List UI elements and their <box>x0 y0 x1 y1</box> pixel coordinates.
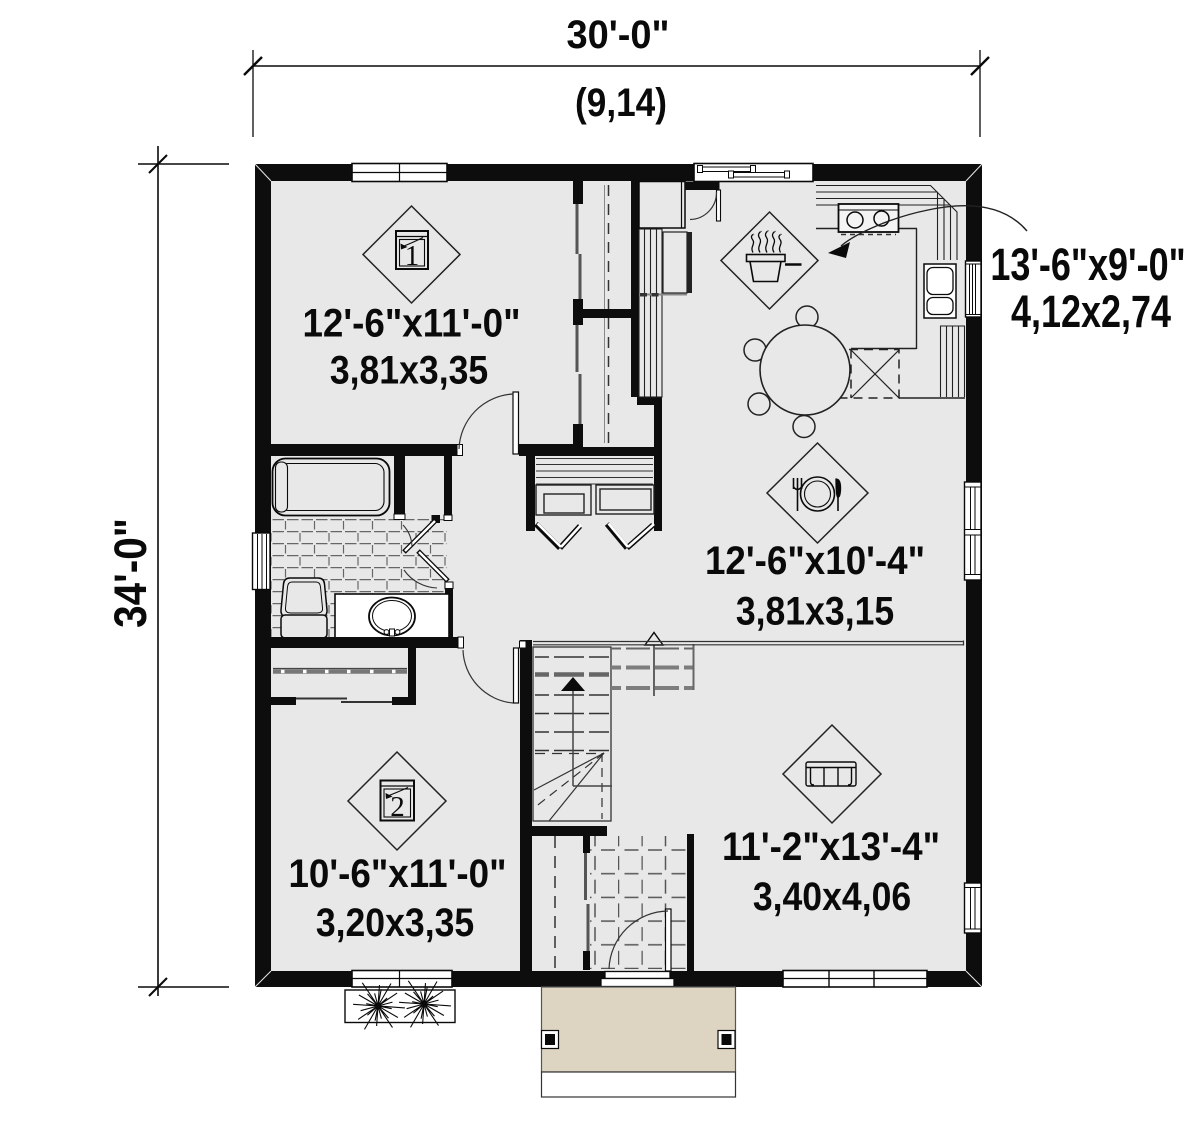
svg-text:34'-0": 34'-0" <box>106 518 156 628</box>
svg-text:2: 2 <box>390 791 405 823</box>
svg-text:(9,14): (9,14) <box>575 80 667 125</box>
svg-text:3,81x3,15: 3,81x3,15 <box>736 590 894 634</box>
svg-text:4,12x2,74: 4,12x2,74 <box>1011 286 1171 337</box>
svg-text:10'-6"x11'-0": 10'-6"x11'-0" <box>288 852 506 897</box>
svg-text:3,20x3,35: 3,20x3,35 <box>316 901 474 945</box>
svg-text:12'-6"x10'-4": 12'-6"x10'-4" <box>705 539 925 584</box>
svg-text:3,40x4,06: 3,40x4,06 <box>753 875 911 919</box>
svg-text:1: 1 <box>405 240 420 272</box>
svg-text:11'-2"x13'-4": 11'-2"x13'-4" <box>722 825 940 870</box>
svg-text:13'-6"x9'-0": 13'-6"x9'-0" <box>990 239 1185 290</box>
svg-text:3,81x3,35: 3,81x3,35 <box>330 349 488 393</box>
svg-text:12'-6"x11'-0": 12'-6"x11'-0" <box>302 301 520 346</box>
svg-text:30'-0": 30'-0" <box>566 13 669 57</box>
